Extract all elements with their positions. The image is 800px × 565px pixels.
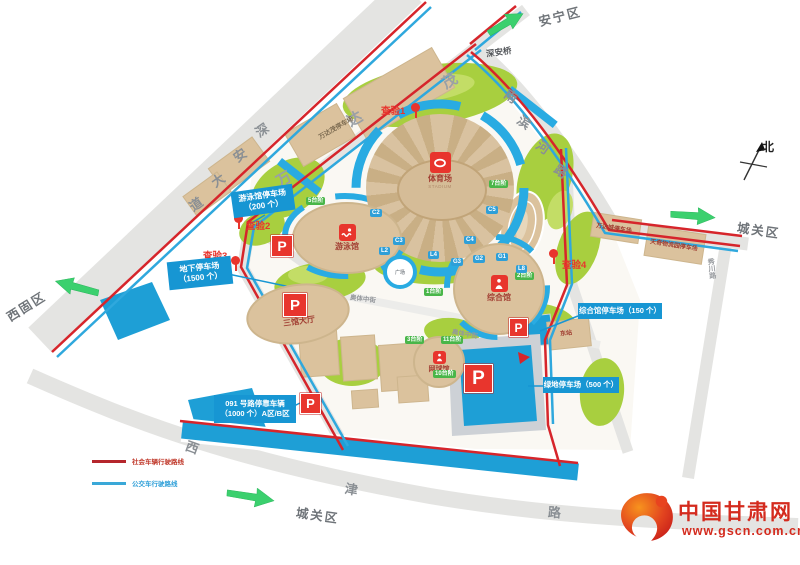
xijin-char: 路 — [547, 502, 561, 522]
p-letter: P — [277, 238, 286, 254]
gymnasium-icon — [491, 275, 508, 292]
p-letter: P — [306, 396, 315, 411]
stair-tag: 10台阶 — [433, 370, 456, 378]
label-greenbelt-parking: 绿地停车场（500 个） — [543, 377, 619, 393]
tennis-icon — [433, 351, 446, 364]
stadium-icon — [430, 152, 451, 173]
greenbelt-parking-text: 绿地停车场（500 个） — [543, 380, 619, 390]
road091-line1: 091 号路停靠车辆 — [214, 399, 296, 409]
watermark-site-name: 中国甘肃网 — [678, 496, 793, 526]
gate-tag: L2 — [379, 247, 390, 255]
gymnasium-name: 综合馆 — [487, 292, 511, 303]
checkpoint-3-pin — [231, 256, 240, 271]
gate-tag: C2 — [370, 209, 382, 217]
checkpoint-1-pin — [411, 103, 420, 118]
label-road091-parking: 091 号路停靠车辆 （1000 个）A区/B区 — [214, 395, 296, 423]
p-letter: P — [514, 321, 522, 335]
legend-blue-line — [92, 482, 126, 485]
road091-line2: （1000 个）A区/B区 — [214, 409, 296, 419]
checkpoint-4-pin — [549, 249, 558, 264]
stair-tag: 2台阶 — [515, 272, 534, 280]
natatorium-icon — [339, 224, 356, 241]
stair-tag: 1台阶 — [424, 288, 443, 296]
checkpoint-2-label: 查验2 — [246, 218, 270, 232]
p-letter: P — [290, 297, 300, 314]
stair-tag: 3台阶 — [405, 336, 424, 344]
p-marker-greenbelt-lot: P — [464, 364, 493, 393]
stair-tag: 5台阶 — [306, 197, 325, 205]
compass-north-label: 北 — [762, 138, 774, 155]
gate-tag: C5 — [486, 206, 498, 214]
label-gymnasium-parking: 综合馆停车场（150 个） — [578, 303, 662, 319]
gate-tag: G2 — [473, 255, 485, 263]
checkpoint-1-label: 查验1 — [381, 103, 405, 117]
gate-tag: G3 — [451, 258, 463, 266]
label-xiuchuan-road: 秀川路 — [705, 258, 717, 280]
p-marker-gym-lot: P — [509, 318, 528, 337]
p-marker-lobby: P — [283, 293, 307, 317]
p-marker-west-gate: P — [271, 235, 293, 257]
legend: 社会车辆行驶路线 公交车行驶路线 — [92, 456, 184, 488]
watermark: 中国甘肃网 www.gscn.com.cn — [620, 490, 800, 560]
label-east-station: 东站 — [560, 327, 573, 337]
gymnasium-parking-text: 综合馆停车场（150 个） — [578, 306, 662, 316]
p-marker-road091: P — [300, 393, 321, 414]
central-plaza: 广场 — [383, 255, 417, 289]
gate-tag: L4 — [428, 251, 439, 259]
legend-red-label: 社会车辆行驶路线 — [132, 456, 184, 466]
plaza-label: 广场 — [395, 269, 405, 276]
gate-tag: G1 — [496, 253, 508, 261]
gate-tag: L8 — [516, 265, 527, 273]
traffic-parking-map: 体育场 STADIUM 游泳馆 综合馆 网球馆 三馆大厅 广场 安宁区 城关区 … — [0, 0, 800, 565]
stair-tag: 7台阶 — [489, 180, 508, 188]
watermark-site-url: www.gscn.com.cn — [682, 524, 800, 538]
p-letter: P — [472, 368, 485, 390]
natatorium-name: 游泳馆 — [335, 241, 359, 252]
legend-red-line — [92, 460, 126, 463]
checkpoint-4-label: 查验4 — [562, 257, 586, 271]
gate-tag: C3 — [393, 237, 405, 245]
gate-tag: C4 — [464, 236, 476, 244]
legend-blue-label: 公交车行驶路线 — [132, 478, 178, 488]
stair-tag: 11台阶 — [441, 336, 463, 344]
gscn-logo-icon — [620, 492, 676, 544]
